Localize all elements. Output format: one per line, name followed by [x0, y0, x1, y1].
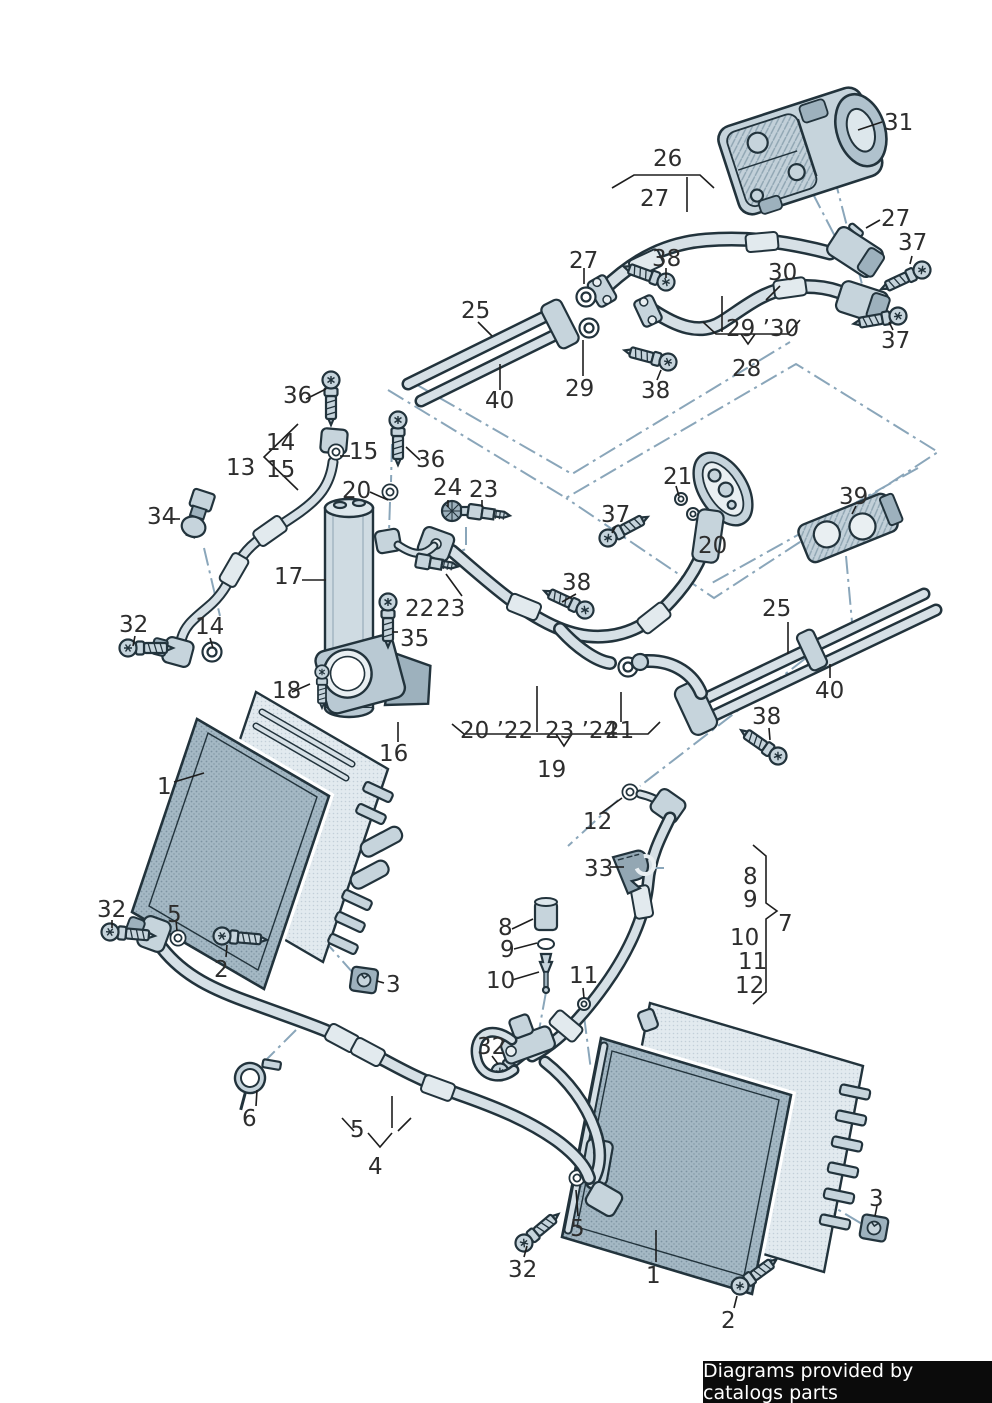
- provider-banner-text: Diagrams provided by catalogs parts: [703, 1360, 992, 1403]
- screw-32-icon: [120, 640, 174, 657]
- callout-37-b[interactable]: 37: [881, 330, 910, 353]
- callout-37-c[interactable]: 37: [601, 504, 630, 527]
- bolt-37-icon: [878, 259, 934, 297]
- callout-25-a[interactable]: 25: [461, 300, 490, 323]
- callout-27-a[interactable]: 27: [640, 188, 669, 211]
- sensor-34: [179, 488, 216, 540]
- callout-40-a[interactable]: 40: [485, 390, 514, 413]
- callout-12-a[interactable]: 12: [583, 811, 612, 834]
- callout-33[interactable]: 33: [584, 858, 613, 881]
- callout-29[interactable]: 29: [565, 378, 594, 401]
- bolt-38-icon: [622, 342, 678, 372]
- callout-11-b[interactable]: 11: [569, 965, 598, 988]
- callout-18[interactable]: 18: [272, 680, 301, 703]
- bolt-35-icon: [380, 594, 397, 648]
- callout-37-a[interactable]: 37: [898, 232, 927, 255]
- pipes-25-40-lower: [672, 594, 936, 768]
- callout-27-b[interactable]: 27: [881, 208, 910, 231]
- callout-36-b[interactable]: 36: [416, 449, 445, 472]
- compressor: [715, 80, 899, 237]
- callout-11-a[interactable]: 11: [738, 951, 767, 974]
- callout-22-a[interactable]: 22: [405, 598, 434, 621]
- callout-5-a[interactable]: 5: [167, 904, 182, 927]
- callout-38-d[interactable]: 38: [752, 706, 781, 729]
- callout-9-b[interactable]: 9: [500, 939, 515, 962]
- callout-29-30[interactable]: 29 ’30: [726, 318, 799, 341]
- callout-30[interactable]: 30: [768, 262, 797, 285]
- callout-13[interactable]: 13: [226, 457, 255, 480]
- callout-20-22[interactable]: 20 ’22: [460, 720, 533, 743]
- callout-20-a[interactable]: 20: [342, 480, 371, 503]
- callout-2-b[interactable]: 2: [721, 1310, 736, 1333]
- callout-9-a[interactable]: 9: [743, 889, 758, 912]
- callout-19[interactable]: 19: [537, 759, 566, 782]
- callout-1-a[interactable]: 1: [157, 776, 172, 799]
- callout-38-a[interactable]: 38: [652, 248, 681, 271]
- clip-nut-3: [859, 1214, 889, 1242]
- callout-38-b[interactable]: 38: [641, 380, 670, 403]
- provider-banner[interactable]: Diagrams provided by catalogs parts: [703, 1361, 992, 1403]
- callout-36-a[interactable]: 36: [283, 385, 312, 408]
- callout-25-b[interactable]: 25: [762, 598, 791, 621]
- screw-36-icon: [390, 412, 407, 466]
- callout-28[interactable]: 28: [732, 358, 761, 381]
- callout-21-b[interactable]: 21: [605, 720, 634, 743]
- callout-32-d[interactable]: 32: [508, 1259, 537, 1282]
- sensor-23: [467, 504, 511, 524]
- callout-10-b[interactable]: 10: [486, 970, 515, 993]
- callout-23-a[interactable]: 23: [469, 479, 498, 502]
- callout-1-b[interactable]: 1: [646, 1265, 661, 1288]
- callout-34[interactable]: 34: [147, 506, 176, 529]
- sensor-24: [442, 501, 469, 521]
- callout-5-b[interactable]: 5: [350, 1119, 365, 1142]
- condenser-right: [562, 1003, 871, 1294]
- callout-31[interactable]: 31: [884, 112, 913, 135]
- callout-20-b[interactable]: 20: [698, 535, 727, 558]
- screw-36-icon: [323, 372, 340, 426]
- screw-32-icon: [512, 1208, 564, 1255]
- callout-2-a[interactable]: 2: [214, 959, 229, 982]
- callout-38-c[interactable]: 38: [562, 572, 591, 595]
- callout-24[interactable]: 24: [433, 477, 462, 500]
- callout-10-a[interactable]: 10: [730, 927, 759, 950]
- callout-16[interactable]: 16: [379, 743, 408, 766]
- parts-diagram-page: 31 26 27 27 37 27 38 30 25 29 ’30 37 28 …: [0, 0, 992, 1403]
- callout-4[interactable]: 4: [368, 1156, 383, 1179]
- callout-7[interactable]: 7: [778, 913, 793, 936]
- callout-3-b[interactable]: 3: [869, 1188, 884, 1211]
- callout-23-b[interactable]: 23: [436, 598, 465, 621]
- screw-18-icon: [315, 665, 329, 708]
- callout-26[interactable]: 26: [653, 148, 682, 171]
- clip-nut-3: [349, 966, 378, 993]
- callout-8-a[interactable]: 8: [743, 866, 758, 889]
- callout-6[interactable]: 6: [242, 1108, 257, 1131]
- callout-40-b[interactable]: 40: [815, 680, 844, 703]
- callout-14-b[interactable]: 14: [195, 616, 224, 639]
- callout-39[interactable]: 39: [839, 486, 868, 509]
- callout-35[interactable]: 35: [400, 628, 429, 651]
- callout-32-a[interactable]: 32: [119, 614, 148, 637]
- callout-15-a[interactable]: 15: [266, 459, 295, 482]
- callout-12-b[interactable]: 12: [735, 975, 764, 998]
- callout-15-b[interactable]: 15: [349, 441, 378, 464]
- callout-21-a[interactable]: 21: [663, 466, 692, 489]
- callout-5-c[interactable]: 5: [570, 1218, 585, 1241]
- callout-27-c[interactable]: 27: [569, 250, 598, 273]
- callout-14-a[interactable]: 14: [266, 432, 295, 455]
- callout-17[interactable]: 17: [274, 566, 303, 589]
- callout-3-a[interactable]: 3: [386, 974, 401, 997]
- callout-32-b[interactable]: 32: [97, 899, 126, 922]
- callout-32-c[interactable]: 32: [477, 1036, 506, 1059]
